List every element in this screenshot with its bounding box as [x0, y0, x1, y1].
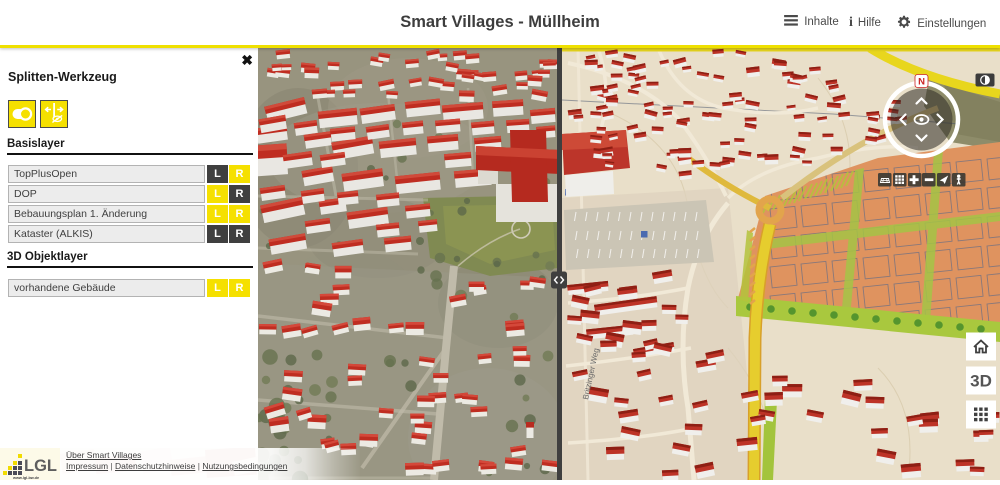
svg-text:N: N: [918, 77, 925, 88]
svg-text:LGL: LGL: [24, 457, 57, 475]
svg-text:www.lgl-bw.de: www.lgl-bw.de: [12, 476, 39, 480]
svg-text:3D: 3D: [970, 372, 992, 391]
